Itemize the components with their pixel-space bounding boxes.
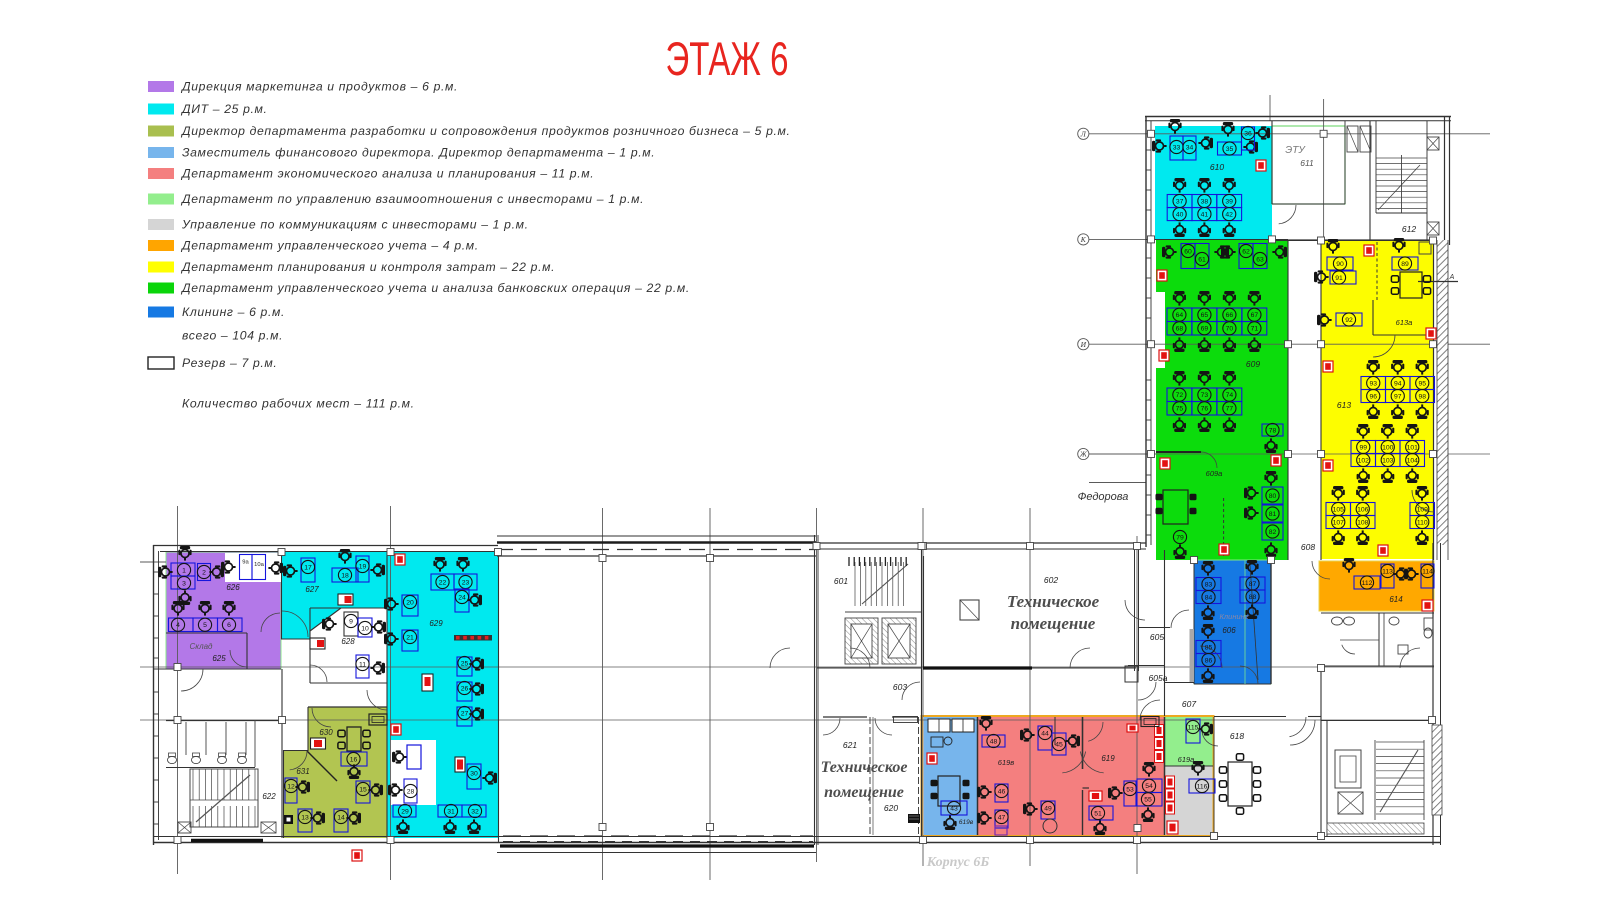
- svg-text:63: 63: [1256, 256, 1264, 263]
- svg-text:Количество рабочих мест –: Количество рабочих мест – 111 р.м.: [182, 397, 415, 411]
- svg-text:107: 107: [1333, 519, 1345, 526]
- svg-text:607: 607: [1182, 699, 1196, 709]
- svg-text:60: 60: [1184, 248, 1192, 255]
- svg-text:40: 40: [1176, 212, 1184, 219]
- svg-text:46: 46: [998, 788, 1006, 795]
- svg-text:97: 97: [1394, 393, 1402, 400]
- svg-text:62: 62: [1242, 248, 1250, 255]
- svg-text:48: 48: [990, 738, 998, 745]
- svg-text:74: 74: [1226, 392, 1234, 399]
- svg-text:10: 10: [361, 625, 369, 632]
- svg-text:613а: 613а: [1396, 318, 1413, 327]
- svg-text:53: 53: [1126, 786, 1134, 793]
- svg-text:ДИТ – 25 р.м.: ДИТ – 25 р.м.: [180, 102, 268, 116]
- svg-text:Корпус 6Б: Корпус 6Б: [926, 855, 990, 870]
- svg-text:601: 601: [834, 576, 848, 586]
- svg-text:101: 101: [1407, 444, 1419, 451]
- svg-text:68: 68: [1176, 326, 1184, 333]
- svg-text:35: 35: [1226, 146, 1234, 153]
- svg-text:619в: 619в: [959, 819, 974, 826]
- svg-text:Техническое: Техническое: [1007, 592, 1100, 611]
- svg-text:85: 85: [1205, 644, 1213, 651]
- svg-text:1: 1: [182, 567, 186, 574]
- svg-text:102: 102: [1358, 457, 1370, 464]
- svg-text:11: 11: [359, 661, 366, 668]
- svg-text:625: 625: [212, 654, 226, 663]
- svg-text:Заместитель финансового дире: Заместитель финансового директора. Дирек…: [182, 146, 655, 160]
- svg-text:39: 39: [1225, 198, 1233, 205]
- svg-text:82: 82: [1269, 529, 1277, 536]
- svg-text:86: 86: [1205, 657, 1213, 664]
- svg-text:23: 23: [462, 579, 470, 586]
- svg-text:помещение: помещение: [1011, 614, 1096, 633]
- svg-text:99: 99: [1359, 444, 1367, 451]
- svg-text:30: 30: [470, 770, 478, 777]
- svg-text:помещение: помещение: [824, 784, 904, 801]
- svg-text:628: 628: [341, 637, 355, 646]
- svg-text:28: 28: [407, 788, 415, 795]
- svg-text:627: 627: [305, 585, 319, 594]
- svg-text:105: 105: [1333, 506, 1345, 513]
- svg-text:65: 65: [1201, 312, 1209, 319]
- svg-text:Департамент управленческого: Департамент управленческого учета – 4 р.…: [180, 239, 479, 253]
- svg-text:Клининг – 6 р.м.: Клининг – 6 р.м.: [182, 305, 285, 319]
- svg-text:5: 5: [203, 622, 207, 629]
- svg-text:81: 81: [1269, 511, 1277, 518]
- svg-text:110: 110: [1417, 519, 1428, 526]
- svg-text:25: 25: [461, 660, 469, 667]
- svg-text:33: 33: [1173, 144, 1181, 151]
- svg-text:96: 96: [1369, 393, 1377, 400]
- svg-text:64: 64: [1176, 312, 1184, 319]
- svg-text:91: 91: [1335, 275, 1343, 282]
- svg-text:Департамент планирования и: Департамент планирования и контроля затр…: [180, 260, 555, 274]
- svg-text:31: 31: [447, 808, 455, 815]
- svg-text:618: 618: [1230, 731, 1244, 741]
- svg-text:614: 614: [1389, 595, 1403, 604]
- svg-text:6: 6: [227, 622, 231, 629]
- svg-text:76: 76: [1201, 406, 1209, 413]
- svg-text:90: 90: [1336, 261, 1344, 268]
- svg-text:16: 16: [350, 756, 358, 763]
- svg-text:113: 113: [1382, 568, 1393, 575]
- svg-text:61: 61: [1198, 256, 1206, 263]
- svg-text:10а: 10а: [254, 562, 264, 568]
- svg-text:Л: Л: [1080, 129, 1087, 138]
- svg-text:603: 603: [893, 682, 907, 692]
- svg-text:69: 69: [1201, 326, 1209, 333]
- svg-text:всего – 104 р.м.: всего – 104 р.м.: [182, 329, 283, 343]
- svg-text:114: 114: [1422, 568, 1433, 575]
- svg-text:21: 21: [406, 634, 414, 641]
- svg-text:47: 47: [998, 814, 1006, 821]
- svg-text:89: 89: [1401, 261, 1409, 268]
- svg-text:Департамент экономического а: Департамент экономического анализа и пла…: [180, 167, 594, 181]
- svg-text:51: 51: [1094, 810, 1102, 817]
- svg-text:608: 608: [1301, 542, 1315, 552]
- svg-text:92: 92: [1345, 317, 1353, 324]
- svg-text:612: 612: [1402, 224, 1416, 234]
- svg-text:100: 100: [1382, 444, 1394, 451]
- svg-text:619: 619: [1101, 754, 1115, 763]
- svg-text:630: 630: [319, 728, 333, 737]
- svg-text:87: 87: [1249, 581, 1257, 588]
- svg-text:77: 77: [1226, 406, 1234, 413]
- svg-text:17: 17: [304, 564, 312, 571]
- svg-text:67: 67: [1251, 312, 1259, 319]
- svg-text:54: 54: [1145, 783, 1153, 790]
- svg-text:626: 626: [226, 583, 240, 592]
- svg-text:602: 602: [1044, 575, 1058, 585]
- svg-text:104: 104: [1407, 457, 1419, 464]
- svg-text:45: 45: [1055, 741, 1063, 748]
- svg-text:609а: 609а: [1206, 469, 1223, 478]
- svg-text:38: 38: [1201, 198, 1209, 205]
- svg-text:613: 613: [1337, 400, 1351, 410]
- svg-text:606: 606: [1222, 626, 1236, 635]
- svg-text:К: К: [1080, 235, 1087, 244]
- svg-text:3: 3: [182, 580, 186, 587]
- svg-text:19: 19: [359, 563, 367, 570]
- svg-text:Департамент управленческого: Департамент управленческого учета и анал…: [180, 281, 690, 295]
- svg-text:29: 29: [401, 808, 409, 815]
- svg-text:4: 4: [176, 622, 180, 629]
- svg-text:83: 83: [1205, 581, 1213, 588]
- svg-text:72: 72: [1176, 392, 1184, 399]
- svg-text:109: 109: [1417, 506, 1429, 513]
- svg-text:15: 15: [359, 786, 367, 793]
- svg-text:Ж: Ж: [1079, 450, 1088, 459]
- svg-text:Управление по коммуникациям: Управление по коммуникациям с инвесторам…: [181, 218, 529, 232]
- svg-text:Директор департамента разраб: Директор департамента разработки и сопро…: [180, 124, 791, 138]
- svg-text:95: 95: [1418, 380, 1426, 387]
- svg-text:55: 55: [1144, 797, 1152, 804]
- svg-text:621: 621: [843, 740, 857, 750]
- svg-text:78: 78: [1269, 427, 1277, 434]
- svg-text:Клининг: Клининг: [1220, 612, 1249, 621]
- svg-text:12: 12: [287, 783, 295, 790]
- svg-text:629: 629: [429, 619, 443, 628]
- svg-text:37: 37: [1176, 198, 1184, 205]
- svg-text:Техническое: Техническое: [821, 759, 908, 776]
- svg-text:93: 93: [1369, 380, 1377, 387]
- svg-text:79: 79: [1176, 535, 1184, 542]
- svg-text:34: 34: [1186, 144, 1194, 151]
- svg-text:108: 108: [1357, 519, 1369, 526]
- svg-text:106: 106: [1357, 506, 1369, 513]
- svg-text:115: 115: [1188, 724, 1199, 731]
- svg-text:605: 605: [1150, 632, 1164, 642]
- svg-text:13: 13: [301, 814, 309, 821]
- svg-text:Склад: Склад: [190, 642, 214, 651]
- svg-text:Резерв – 7 р.м.: Резерв – 7 р.м.: [182, 356, 277, 370]
- svg-text:24: 24: [458, 594, 466, 601]
- svg-text:27: 27: [461, 710, 469, 717]
- svg-text:622: 622: [262, 792, 276, 801]
- svg-text:42: 42: [1225, 212, 1233, 219]
- svg-text:32: 32: [471, 808, 479, 815]
- svg-text:9а: 9а: [242, 560, 249, 566]
- svg-text:9: 9: [349, 618, 353, 625]
- svg-text:619а: 619а: [1178, 755, 1195, 764]
- svg-text:620: 620: [884, 803, 898, 813]
- svg-text:А: А: [1449, 274, 1455, 281]
- svg-text:71: 71: [1251, 326, 1259, 333]
- svg-text:66: 66: [1226, 312, 1234, 319]
- svg-text:112: 112: [1362, 580, 1373, 587]
- svg-text:20: 20: [406, 599, 414, 606]
- svg-text:103: 103: [1382, 457, 1394, 464]
- svg-text:49: 49: [1044, 805, 1052, 812]
- svg-text:116: 116: [1197, 783, 1208, 790]
- svg-text:610: 610: [1210, 162, 1224, 172]
- svg-text:73: 73: [1201, 392, 1209, 399]
- svg-text:94: 94: [1394, 380, 1402, 387]
- svg-text:84: 84: [1205, 594, 1213, 601]
- svg-text:631: 631: [296, 767, 309, 776]
- svg-text:ЭТУ: ЭТУ: [1285, 145, 1306, 156]
- svg-text:98: 98: [1418, 393, 1426, 400]
- svg-text:26: 26: [461, 685, 469, 692]
- svg-text:70: 70: [1226, 326, 1234, 333]
- svg-text:43: 43: [950, 805, 958, 812]
- svg-text:75: 75: [1176, 406, 1184, 413]
- svg-text:88: 88: [1249, 594, 1257, 601]
- svg-text:И: И: [1080, 340, 1087, 349]
- svg-text:605а: 605а: [1149, 673, 1168, 683]
- svg-text:Дирекция маркетинга и проду: Дирекция маркетинга и продуктов – 6 р.м.: [180, 80, 458, 94]
- svg-text:36: 36: [1244, 130, 1252, 137]
- svg-text:80: 80: [1269, 493, 1277, 500]
- svg-text:609: 609: [1246, 359, 1260, 369]
- svg-text:ЭТАЖ 6: ЭТАЖ 6: [666, 32, 789, 85]
- svg-text:Федорова: Федорова: [1078, 491, 1129, 503]
- svg-text:2: 2: [202, 569, 206, 576]
- svg-text:18: 18: [341, 572, 349, 579]
- svg-text:611: 611: [1300, 158, 1314, 168]
- svg-text:44: 44: [1041, 730, 1049, 737]
- svg-text:14: 14: [337, 814, 345, 821]
- svg-text:619в: 619в: [998, 758, 1015, 767]
- svg-text:Департамент по управлению в: Департамент по управлению взаимоотношени…: [180, 192, 644, 206]
- svg-text:41: 41: [1201, 212, 1209, 219]
- svg-text:22: 22: [439, 579, 447, 586]
